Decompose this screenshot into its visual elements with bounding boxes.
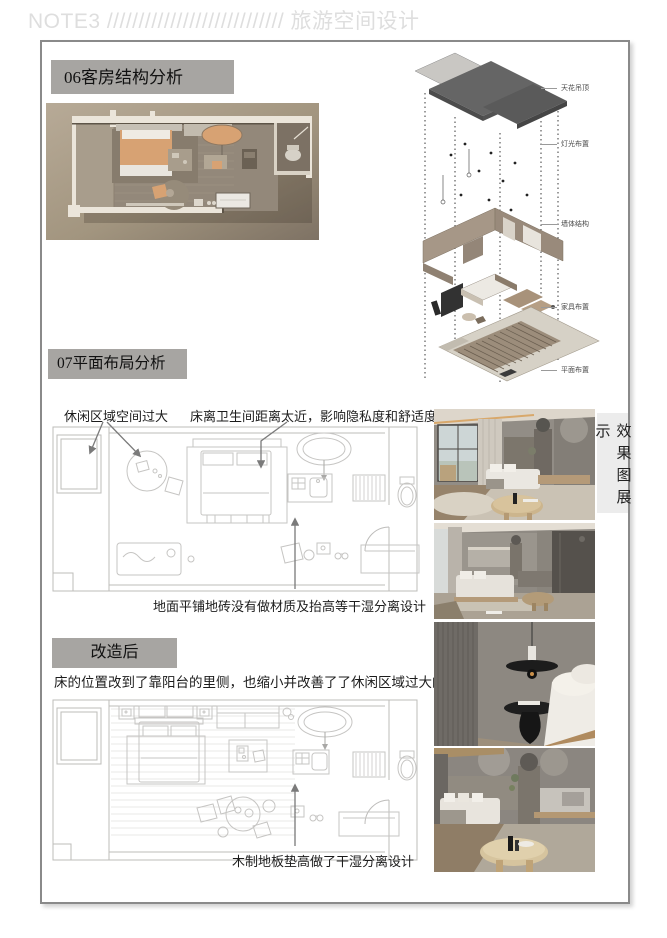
- render-photo-1: [434, 409, 595, 520]
- render-photo-2: [434, 523, 595, 619]
- axon-label-walls: 墙体结构: [541, 219, 589, 229]
- exploded-axon-svg: [403, 45, 628, 393]
- floor-plan-after: [45, 688, 425, 878]
- bed-foot: [120, 165, 172, 176]
- leader-line: [541, 307, 557, 308]
- axon-label-furniture: 家具布置: [541, 302, 589, 312]
- pendant-lamps: [441, 149, 471, 204]
- section-06-title: 06客房结构分析: [51, 60, 234, 94]
- page-header: NOTE3 //////////////////////////// 旅游空间设…: [28, 5, 648, 35]
- bed-pillows: [122, 130, 170, 139]
- bathtub-oval: [202, 125, 242, 145]
- axon-label-text: 墙体结构: [561, 219, 589, 229]
- plan-furniture: [117, 433, 419, 575]
- section-07-title: 07平面布局分析: [48, 349, 187, 379]
- axon-label-text: 灯光布置: [561, 139, 589, 149]
- leader-line: [541, 88, 557, 89]
- room-3d-plan-svg: [46, 103, 319, 240]
- axon-label-lighting: 灯光布置: [541, 139, 589, 149]
- axon-label-text: 平面布置: [561, 365, 589, 375]
- axon-label-text: 天花吊顶: [561, 83, 589, 93]
- gallery-label: 效果图展示: [597, 413, 628, 513]
- annotation-floor-tile: 地面平铺地砖没有做材质及抬高等干湿分离设计: [153, 596, 426, 615]
- annotation-wood-floor: 木制地板垫高做了干湿分离设计: [232, 851, 414, 870]
- leader-line: [541, 370, 557, 371]
- after-title: 改造后: [52, 638, 177, 668]
- exploded-axon-diagram: 天花吊顶 灯光布置 墙体结构 家具布置 平面布置: [403, 45, 628, 393]
- leader-line: [541, 144, 557, 145]
- axon-label-plan: 平面布置: [541, 365, 589, 375]
- axon-label-text: 家具布置: [561, 302, 589, 312]
- render-photo-4: [434, 748, 595, 872]
- leader-line: [541, 224, 557, 225]
- bed-headboard: [116, 124, 182, 131]
- room-3d-plan-image: [46, 103, 319, 240]
- page: NOTE3 //////////////////////////// 旅游空间设…: [0, 0, 667, 938]
- render-photo-3: [434, 622, 595, 746]
- floor-plan-before: [45, 405, 425, 617]
- plan-walls: [53, 427, 417, 591]
- axon-label-ceiling: 天花吊顶: [541, 83, 589, 93]
